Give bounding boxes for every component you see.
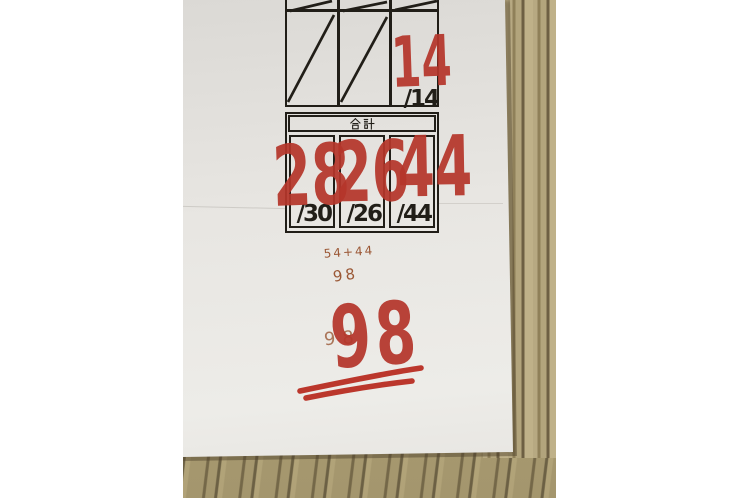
handwritten-score-28: 28 [271,133,327,219]
pen-calculation-result: 98 [332,266,359,284]
photo-of-score-sheet: /14 合計 /30 /26 /44 [183,0,556,498]
table-grid-line [337,0,340,105]
handwritten-score-26: 26 [334,130,387,215]
handwritten-final-total: 98 [328,292,391,382]
page: /14 合計 /30 /26 /44 [0,0,740,498]
table-grid-line [287,9,437,12]
handwritten-score-44: 44 [397,125,450,210]
handwritten-score-14: 14 [390,26,442,98]
